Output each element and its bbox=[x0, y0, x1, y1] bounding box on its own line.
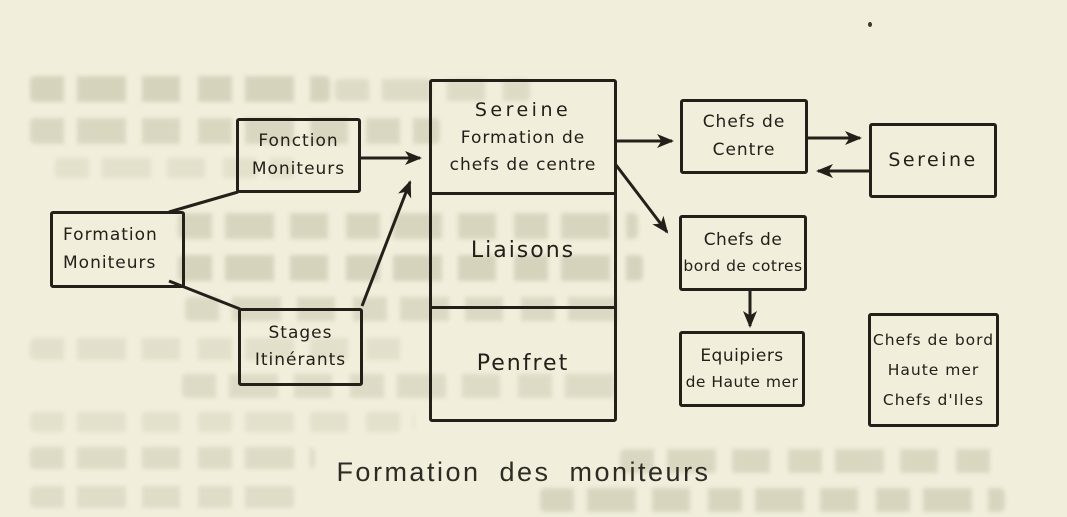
node-stages-itinerants: Stages Itinérants bbox=[238, 308, 363, 386]
node-text: Itinérants bbox=[255, 347, 346, 374]
node-text: Chefs d'Iles bbox=[883, 385, 984, 415]
node-text: Chefs de bbox=[703, 109, 786, 136]
arrow-stages-to-central bbox=[362, 182, 410, 306]
node-penfret: Penfret bbox=[432, 306, 614, 419]
node-text: Moniteurs bbox=[252, 156, 345, 183]
node-text: Formation de bbox=[461, 125, 585, 152]
bleedthrough-smudge bbox=[540, 488, 1005, 512]
bleedthrough-smudge bbox=[30, 118, 440, 144]
node-text: Penfret bbox=[477, 346, 569, 381]
node-text: bord de cotres bbox=[683, 254, 802, 279]
node-sereine-formation-chefs-de-centre: Sereine Formation de chefs de centre bbox=[432, 82, 614, 192]
link-formation-to-fonction bbox=[169, 192, 238, 212]
scanned-page: Fonction Moniteurs Formation Moniteurs S… bbox=[0, 0, 1067, 517]
node-text: Formation bbox=[63, 222, 158, 249]
node-text: Stages bbox=[269, 320, 333, 347]
node-text: Haute mer bbox=[888, 355, 980, 385]
node-text: Liaisons bbox=[471, 233, 575, 268]
node-chefs-de-bord-haute-mer-chefs-d-iles: Chefs de bord Haute mer Chefs d'Iles bbox=[868, 313, 999, 427]
node-fonction-moniteurs: Fonction Moniteurs bbox=[236, 118, 361, 193]
node-text: Chefs de bbox=[704, 227, 783, 254]
node-text: chefs de centre bbox=[450, 152, 597, 179]
bleedthrough-smudge bbox=[30, 412, 415, 432]
node-text: Chefs de bord bbox=[873, 325, 994, 355]
figure-caption: Formation des moniteurs bbox=[0, 457, 1047, 488]
node-chefs-de-bord-de-cotres: Chefs de bord de cotres bbox=[679, 215, 807, 291]
bleedthrough-smudge bbox=[30, 486, 295, 508]
node-text: Moniteurs bbox=[63, 250, 156, 277]
node-text: Fonction bbox=[258, 128, 338, 155]
node-chefs-de-centre: Chefs de Centre bbox=[680, 99, 808, 174]
node-sereine: Sereine bbox=[869, 123, 997, 198]
node-text: de Haute mer bbox=[686, 370, 799, 395]
node-text: Sereine bbox=[888, 145, 977, 175]
node-text: Equipiers bbox=[700, 343, 783, 370]
bleedthrough-smudge bbox=[30, 76, 330, 102]
ink-speck bbox=[868, 22, 872, 27]
node-equipiers-de-haute-mer: Equipiers de Haute mer bbox=[679, 331, 805, 407]
node-text: Sereine bbox=[475, 95, 571, 125]
node-central-column: Sereine Formation de chefs de centre Lia… bbox=[429, 79, 617, 422]
node-text: Centre bbox=[713, 137, 776, 164]
node-formation-moniteurs: Formation Moniteurs bbox=[50, 211, 185, 288]
node-liaisons: Liaisons bbox=[432, 192, 614, 305]
